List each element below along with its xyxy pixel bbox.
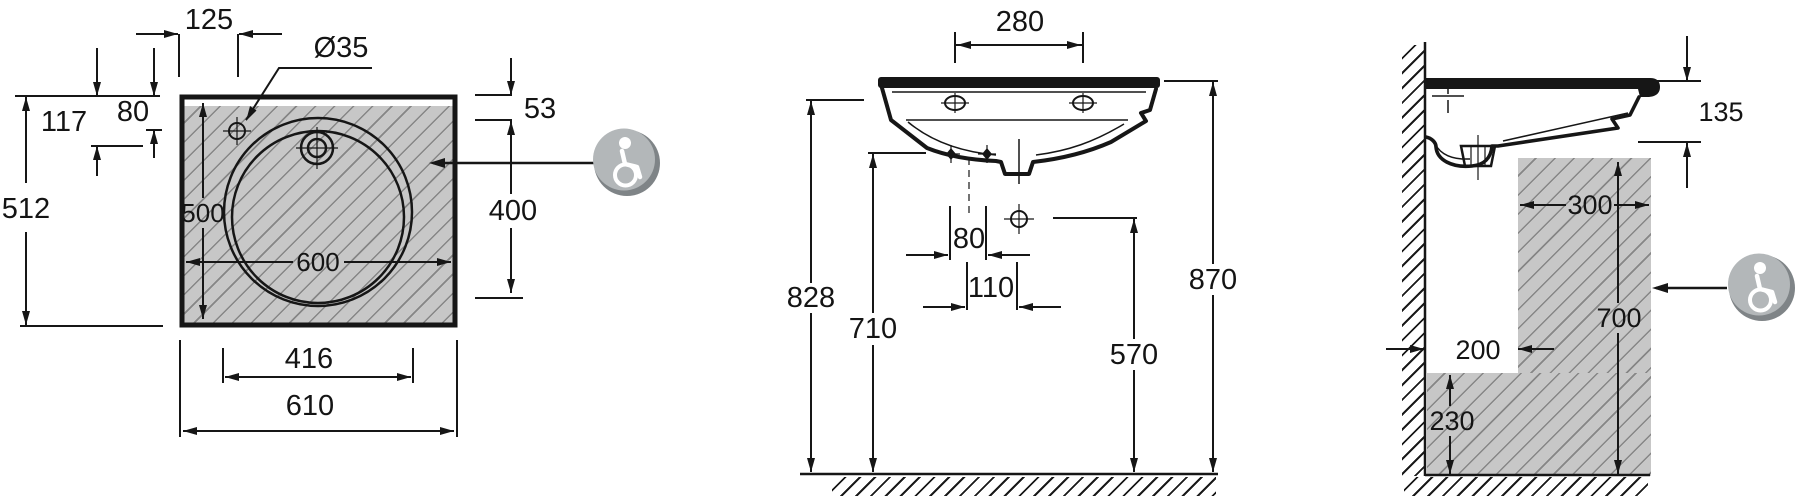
fixing-hole-cross	[1069, 93, 1097, 113]
wheelchair-head	[1754, 262, 1766, 274]
front-dimension-lines	[806, 32, 1218, 472]
dim-label-110: 110	[968, 272, 1014, 304]
dim-label-300: 300	[1567, 190, 1612, 220]
drawing-linework: 125 Ø35 117 80 512 500 600 416 610 53 40…	[0, 0, 1800, 500]
dim-label-125: 125	[185, 4, 233, 36]
wheelchair-head	[619, 137, 631, 149]
tap-hole-35	[223, 117, 251, 145]
dim-label-500: 500	[181, 198, 224, 228]
plan-arrowheads	[22, 30, 515, 435]
fixing-hole-left	[941, 93, 969, 113]
dim-label-53: 53	[524, 93, 556, 125]
fixing-hole-cross	[941, 93, 969, 113]
accessibility-icon-right	[1728, 254, 1795, 322]
dim-label-80-plan: 80	[117, 96, 149, 128]
dim-label-416: 416	[285, 343, 333, 375]
dim-label-200: 200	[1455, 335, 1500, 365]
tap-hole-centerlines	[223, 117, 251, 145]
dim-label-870: 870	[1189, 264, 1237, 296]
dim-label-80-front: 80	[953, 223, 985, 255]
dim-label-570: 570	[1110, 339, 1158, 371]
plan-dimension-lines	[15, 34, 523, 437]
plan-view: 125 Ø35 117 80 512 500 600 416 610 53 40…	[2, 4, 595, 437]
basin-side-outline	[1426, 97, 1639, 166]
front-view: 280 828 710 80 110 570 870	[787, 6, 1237, 474]
dim-label-400: 400	[489, 195, 537, 227]
dim-label-135: 135	[1698, 97, 1743, 127]
waste-cross	[1004, 204, 1034, 234]
dim-label-280: 280	[996, 6, 1044, 38]
basin-rim-side	[1425, 78, 1660, 97]
fixing-hole-right	[1069, 93, 1097, 113]
side-view: 135 300 700 200 230	[1386, 36, 1744, 476]
technical-drawing-canvas: 125 Ø35 117 80 512 500 600 416 610 53 40…	[0, 0, 1800, 500]
dim-label-512: 512	[2, 193, 50, 225]
dim-label-700: 700	[1596, 303, 1641, 333]
diameter-leader-line	[246, 68, 372, 120]
front-arrowheads	[807, 41, 1217, 472]
basin-rim-front	[878, 77, 1160, 88]
accessibility-icon-left	[593, 129, 660, 197]
dim-label-230: 230	[1429, 406, 1474, 436]
basin-outer-rim	[224, 118, 412, 306]
dim-label-117: 117	[41, 106, 87, 138]
dim-label-710: 710	[849, 313, 897, 345]
dim-label-dia35: Ø35	[314, 32, 369, 64]
apron-edge-lines	[892, 92, 1146, 120]
waste-connection-mark	[1004, 204, 1034, 234]
dim-label-828: 828	[787, 282, 835, 314]
dim-label-600: 600	[296, 247, 339, 277]
dim-label-610: 610	[286, 390, 334, 422]
